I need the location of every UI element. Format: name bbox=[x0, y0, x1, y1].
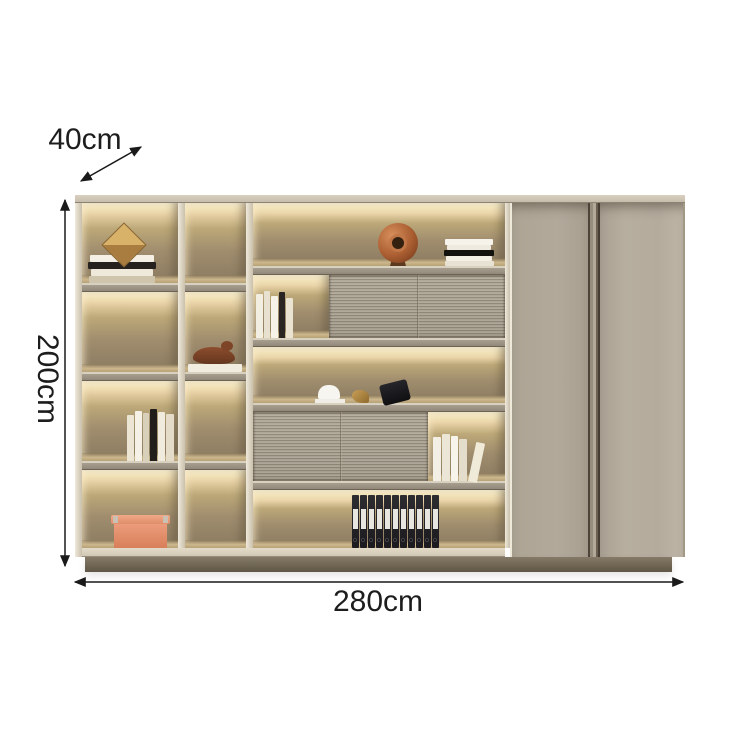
binder bbox=[432, 495, 439, 548]
binder bbox=[416, 495, 423, 548]
book-stack bbox=[443, 239, 495, 266]
cabinet-right-edge bbox=[683, 203, 685, 557]
leaning-books bbox=[433, 432, 491, 481]
wardrobe-door-right bbox=[600, 203, 683, 557]
book bbox=[264, 291, 270, 338]
bird-sculpture-head bbox=[221, 341, 233, 351]
book bbox=[256, 294, 263, 338]
shelf-edge bbox=[253, 338, 505, 347]
arch-decor-object bbox=[318, 385, 340, 399]
book bbox=[445, 261, 494, 266]
book bbox=[188, 364, 242, 372]
file-binders bbox=[352, 495, 439, 548]
shelf-edge bbox=[185, 372, 246, 381]
door-seam bbox=[340, 412, 342, 481]
shelf-cubby bbox=[185, 381, 246, 461]
book bbox=[433, 437, 441, 481]
shelf-edge bbox=[253, 481, 505, 490]
book bbox=[279, 292, 285, 338]
book bbox=[143, 413, 149, 461]
binder bbox=[368, 495, 375, 548]
brass-decor-object bbox=[352, 390, 369, 403]
book bbox=[91, 269, 153, 276]
book bbox=[315, 399, 345, 403]
width-arrow-icon bbox=[67, 574, 691, 590]
book bbox=[166, 414, 174, 461]
book bbox=[442, 434, 450, 481]
binder bbox=[360, 495, 367, 548]
cabinet-plinth bbox=[85, 557, 672, 572]
storage-box-lid bbox=[111, 515, 170, 524]
copper-disc-sculpture bbox=[378, 223, 418, 263]
binder bbox=[400, 495, 407, 548]
book bbox=[459, 439, 467, 481]
binder bbox=[376, 495, 383, 548]
cabinet bbox=[75, 195, 685, 572]
cabinet-top-panel bbox=[75, 195, 685, 203]
cabinet-left-side-panel bbox=[75, 203, 82, 557]
door-handle-groove bbox=[588, 203, 600, 557]
shelf-edge bbox=[185, 461, 246, 470]
binder bbox=[352, 495, 359, 548]
product-dimension-image: 40cm 200cm 280cm bbox=[0, 0, 750, 750]
binder bbox=[392, 495, 399, 548]
standing-books bbox=[256, 290, 296, 338]
book bbox=[89, 276, 155, 283]
book bbox=[468, 442, 485, 483]
book bbox=[286, 298, 293, 338]
binder bbox=[408, 495, 415, 548]
shelf-edge bbox=[253, 266, 505, 275]
storage-box bbox=[114, 524, 167, 548]
shelf-edge bbox=[82, 283, 178, 292]
vertical-divider bbox=[246, 203, 253, 548]
binder bbox=[424, 495, 431, 548]
shelf-edge bbox=[82, 372, 178, 381]
book bbox=[271, 296, 278, 338]
book bbox=[451, 436, 458, 481]
vertical-divider bbox=[178, 203, 185, 548]
wardrobe-door-left bbox=[512, 203, 588, 557]
shelf-edge bbox=[185, 283, 246, 292]
shelf-cubby bbox=[82, 292, 178, 372]
cabinet-bottom-board bbox=[82, 548, 505, 557]
book bbox=[127, 415, 134, 461]
book bbox=[135, 411, 142, 461]
shelf-edge bbox=[253, 403, 505, 412]
box-clip bbox=[163, 516, 168, 523]
depth-arrow-icon bbox=[70, 138, 152, 188]
shelf-edge bbox=[82, 461, 178, 470]
fluted-sliding-door bbox=[329, 275, 505, 338]
book bbox=[150, 409, 157, 461]
binder bbox=[384, 495, 391, 548]
shelf-cubby bbox=[185, 203, 246, 283]
book bbox=[158, 412, 165, 461]
standing-books bbox=[127, 408, 175, 461]
door-seam bbox=[417, 275, 419, 338]
box-clip bbox=[113, 516, 118, 523]
fluted-sliding-door bbox=[253, 412, 428, 481]
shelf-cubby bbox=[253, 347, 505, 403]
height-arrow-icon bbox=[57, 192, 73, 574]
shelf-cubby bbox=[185, 470, 246, 548]
